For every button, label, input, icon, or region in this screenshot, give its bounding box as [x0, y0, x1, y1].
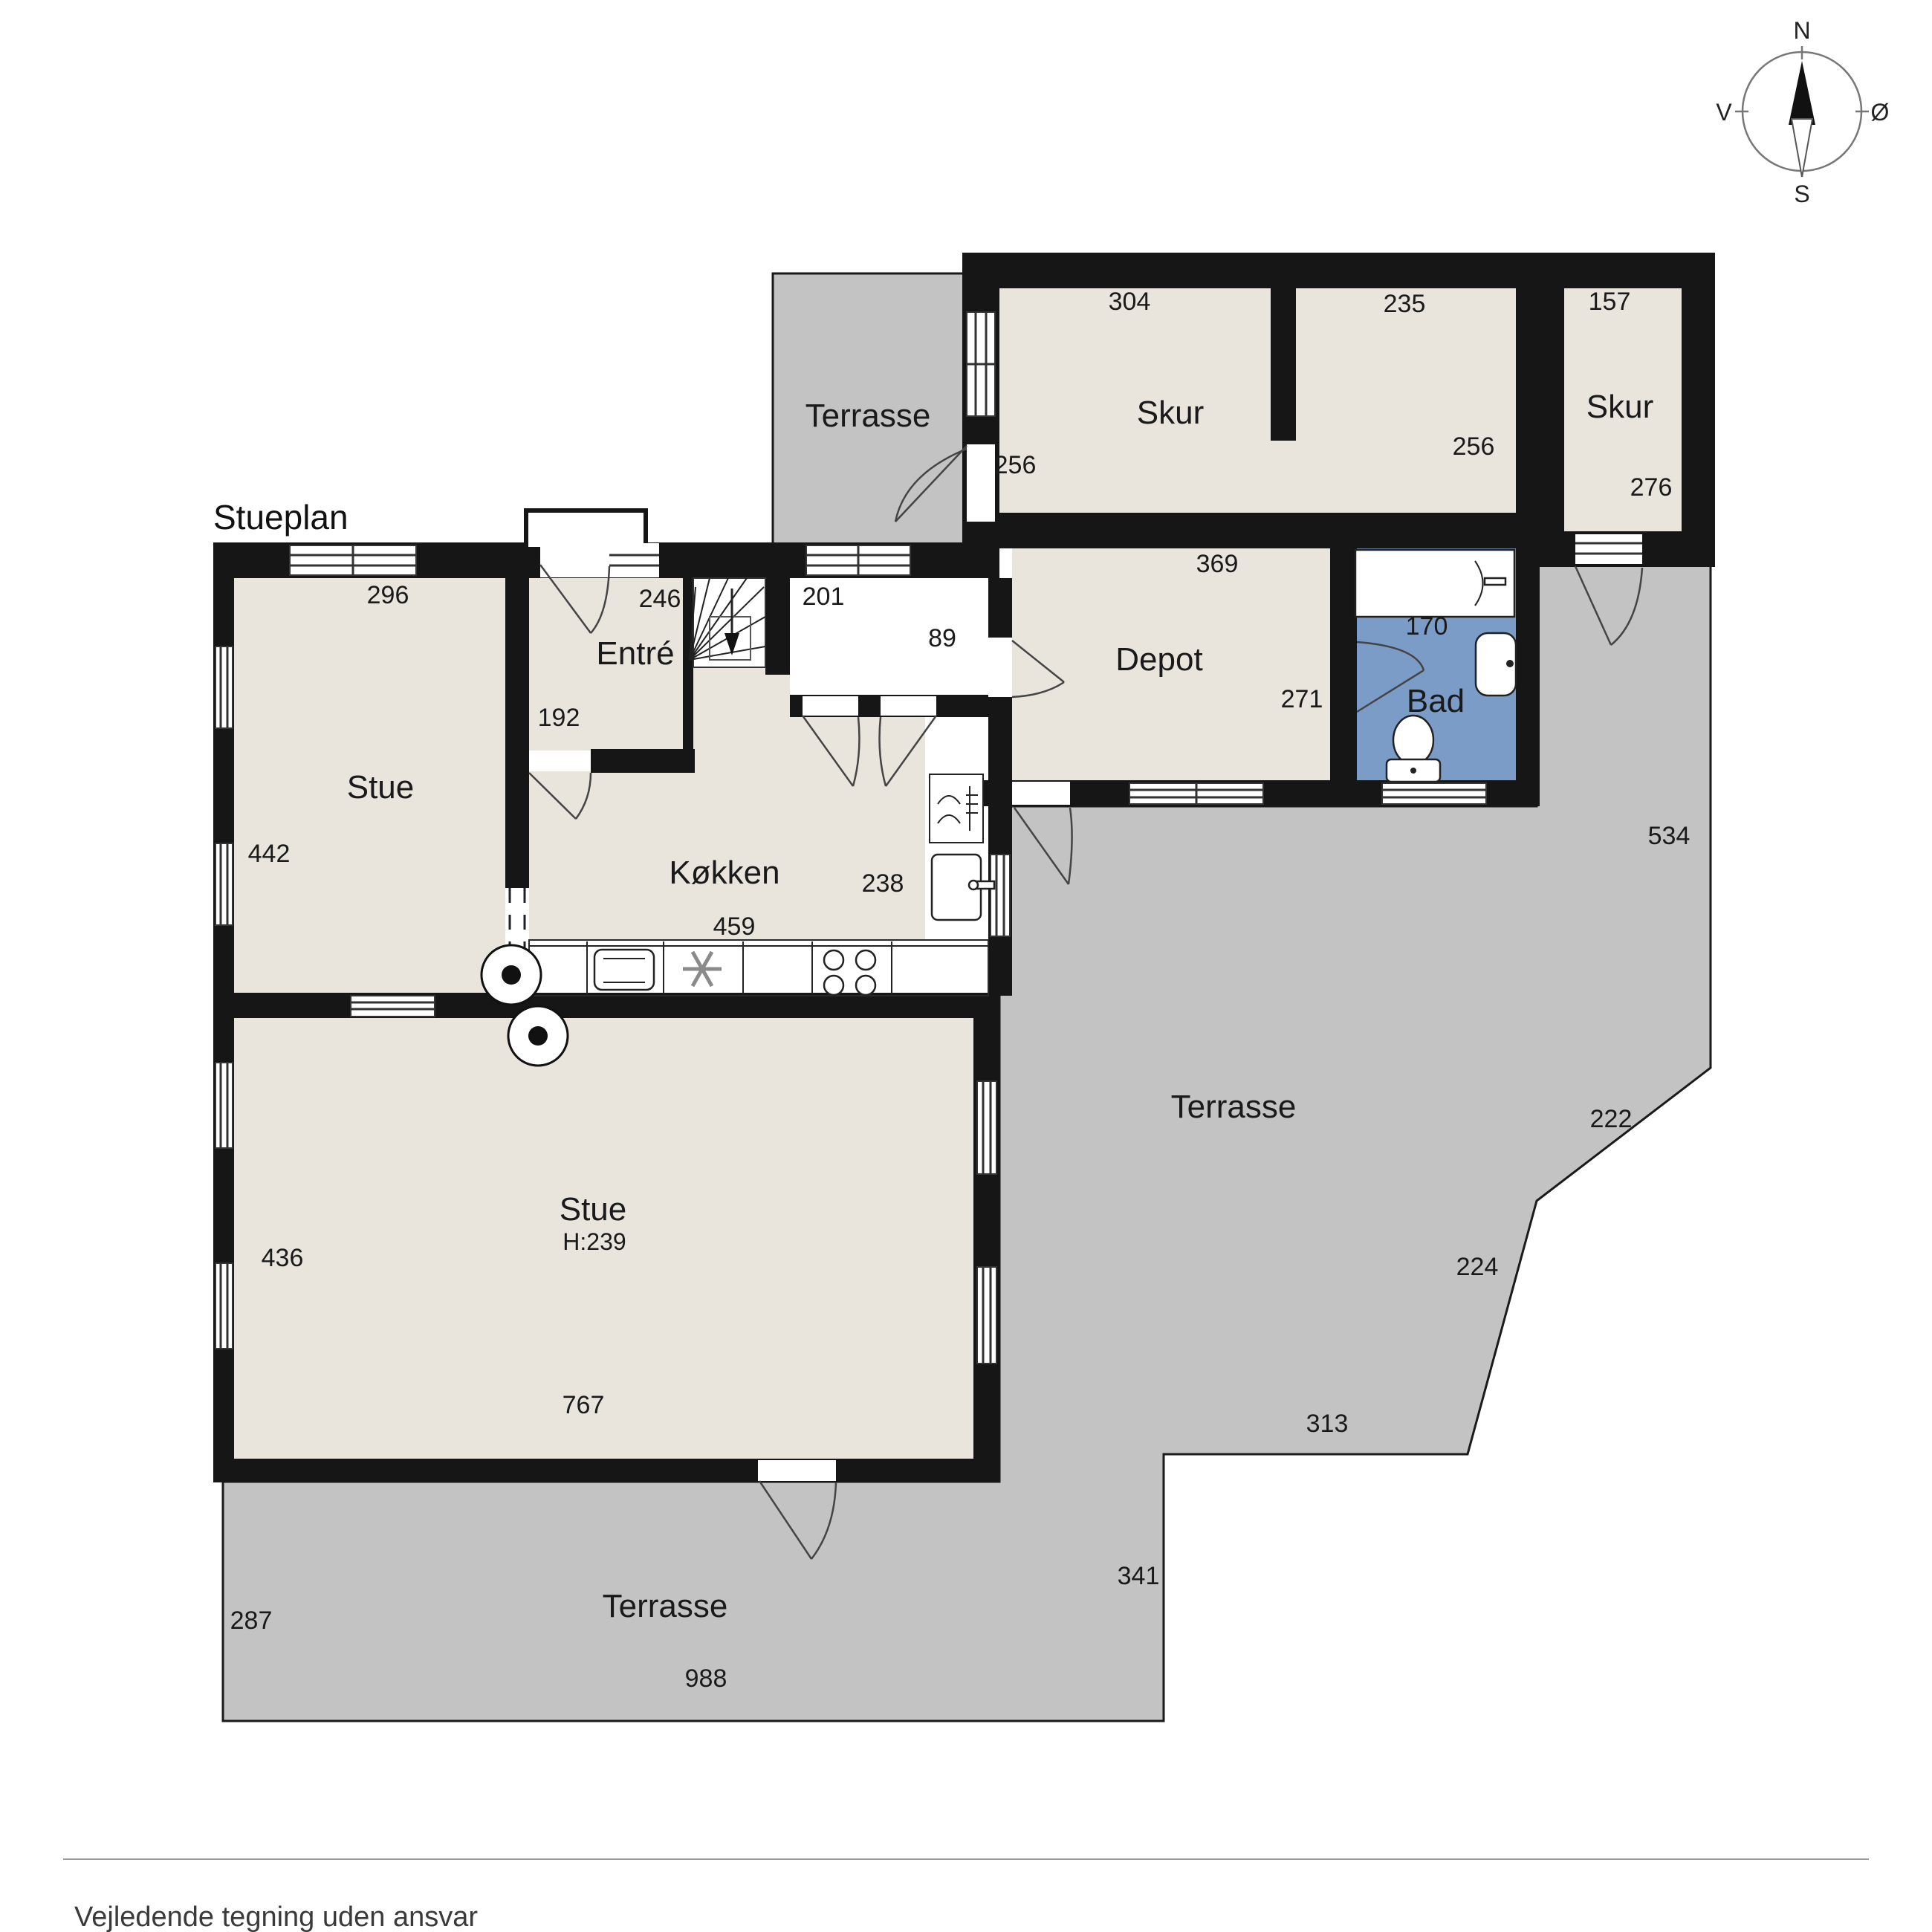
- dim-kokken-bottom: 459: [713, 912, 756, 941]
- dim-terrasse-right-224: 224: [1456, 1253, 1499, 1281]
- dim-hall-right: 89: [928, 624, 956, 652]
- wood-stove-icon-2: [508, 1006, 568, 1066]
- dim-hall-top: 201: [803, 583, 845, 611]
- dim-terrasse-right-313: 313: [1306, 1410, 1349, 1438]
- dim-terrasse-right-222: 222: [1590, 1105, 1633, 1133]
- dim-terrasse-right-534: 534: [1648, 822, 1690, 850]
- dim-skur-small-bottom: 276: [1630, 473, 1673, 502]
- floorplan-page: Stueplan 304 235 Skur 256 256 157 Skur 2…: [0, 0, 1932, 1932]
- room-skur-main: [999, 288, 1516, 513]
- dim-stue-main-bottom: 767: [563, 1391, 605, 1419]
- dim-stue-main-left: 436: [262, 1244, 304, 1272]
- compass-icon: N Ø S V: [1716, 17, 1889, 207]
- dim-terrasse-bottom-left: 287: [230, 1607, 273, 1635]
- dim-terrasse-right-341: 341: [1118, 1562, 1160, 1590]
- compass-label-north: N: [1793, 17, 1810, 44]
- label-stue-top: Stue: [347, 769, 415, 805]
- footer-disclaimer: Vejledende tegning uden ansvar: [74, 1902, 478, 1932]
- staircase: [690, 578, 765, 667]
- label-terrasse-top: Terrasse: [805, 398, 931, 434]
- wood-stove-icon: [482, 945, 541, 1005]
- dim-depot-right: 271: [1281, 685, 1323, 713]
- dim-depot-top: 369: [1196, 550, 1239, 578]
- dim-stue-top-width: 296: [367, 581, 409, 609]
- dim-entre-left: 192: [538, 704, 580, 732]
- dim-bad-top: 170: [1406, 612, 1448, 641]
- compass-needle-north: [1789, 61, 1815, 125]
- dim-entre-top: 246: [639, 585, 681, 613]
- dishwasher-icon: [930, 774, 983, 843]
- dim-skur-small-top: 157: [1589, 288, 1631, 316]
- label-depot: Depot: [1115, 641, 1202, 678]
- compass-label-west: V: [1716, 99, 1732, 126]
- dim-skur-main-bottom-left: 256: [994, 451, 1037, 479]
- label-skur-small: Skur: [1586, 389, 1653, 425]
- dim-kokken-right: 238: [862, 869, 904, 898]
- label-terrasse-bottom: Terrasse: [603, 1588, 728, 1624]
- floorplan-drawing: Stueplan 304 235 Skur 256 256 157 Skur 2…: [0, 0, 1932, 1932]
- label-stue-main: Stue: [560, 1191, 627, 1228]
- label-bad: Bad: [1407, 683, 1465, 719]
- oven-icon: [594, 950, 654, 990]
- compass-label-south: S: [1794, 181, 1809, 207]
- dim-skur-main-top-right: 235: [1384, 290, 1426, 318]
- compass-needle-south: [1792, 119, 1812, 177]
- dim-terrasse-bottom-width: 988: [685, 1664, 727, 1693]
- dim-skur-main-top-left: 304: [1109, 288, 1151, 316]
- label-skur-main: Skur: [1137, 395, 1204, 431]
- ceiling-height-note: H:239: [563, 1228, 626, 1255]
- dim-skur-main-bottom-right: 256: [1453, 432, 1495, 461]
- label-kokken: Køkken: [669, 855, 779, 891]
- label-terrasse-right: Terrasse: [1171, 1089, 1297, 1125]
- dim-stue-top-left: 442: [248, 840, 291, 868]
- page-title: Stueplan: [213, 498, 349, 537]
- label-entre: Entré: [596, 635, 674, 672]
- compass-label-east: Ø: [1871, 99, 1890, 126]
